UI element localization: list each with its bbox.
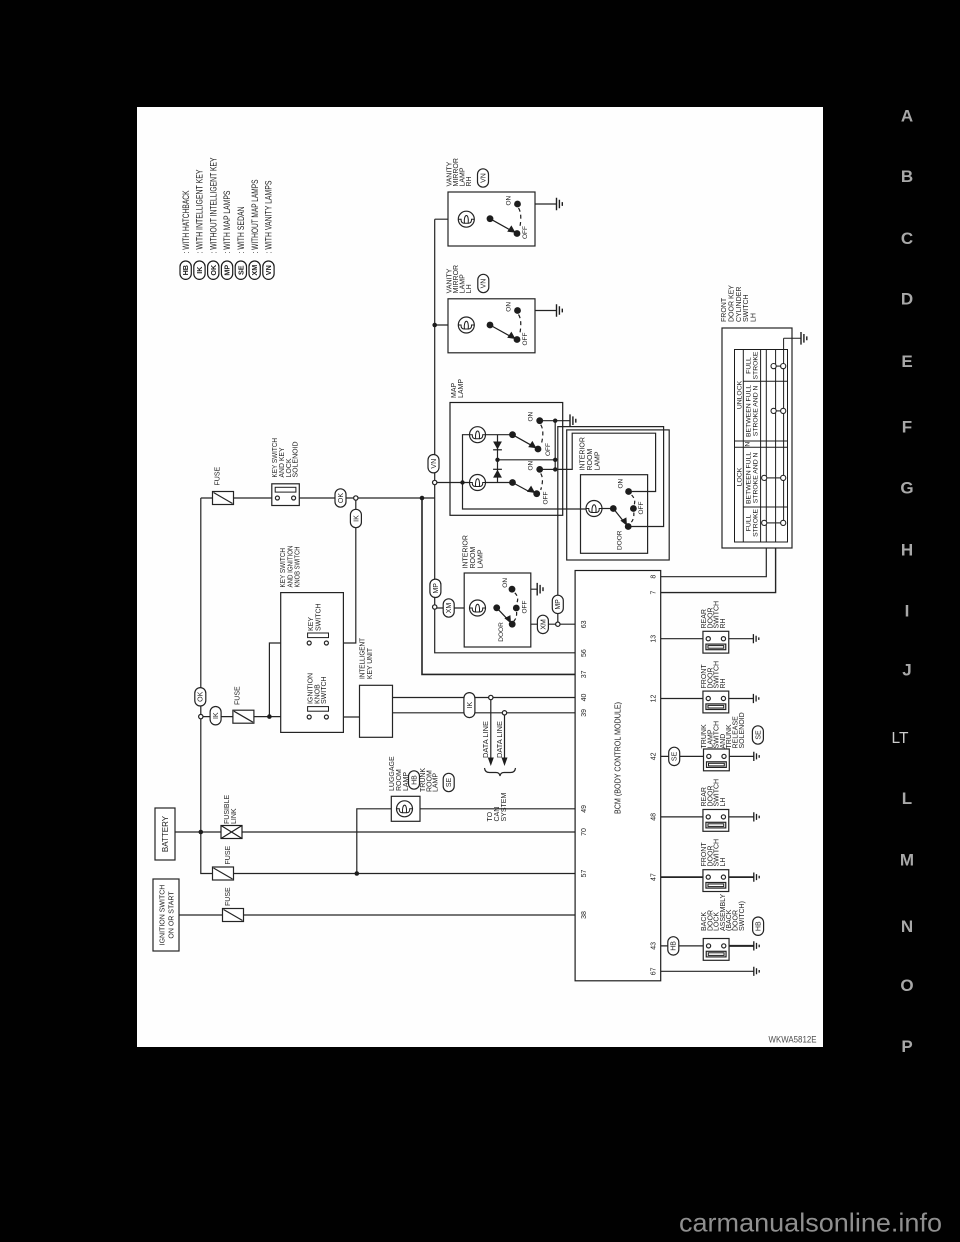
svg-text:KEY SWITCH: KEY SWITCH xyxy=(280,548,287,588)
svg-text:SYSTEM: SYSTEM xyxy=(501,793,508,822)
svg-text:C: C xyxy=(901,229,913,248)
svg-text:DOOR: DOOR xyxy=(617,530,624,550)
svg-text:STROKE: STROKE xyxy=(752,351,759,379)
svg-text:O: O xyxy=(900,976,913,995)
svg-text:XM: XM xyxy=(540,619,547,630)
svg-text:DATA LINE: DATA LINE xyxy=(497,721,504,758)
svg-text:carmanualsonline.info: carmanualsonline.info xyxy=(679,1208,942,1238)
svg-text:LINK: LINK xyxy=(231,808,238,824)
svg-text:SE: SE xyxy=(446,778,453,788)
svg-text:: WITH HATCHBACK: : WITH HATCHBACK xyxy=(181,190,192,253)
svg-text:40: 40 xyxy=(581,694,588,702)
svg-text:OFF: OFF xyxy=(522,332,529,345)
svg-text:SOLENOID: SOLENOID xyxy=(739,712,746,748)
svg-text:LUGGAGE: LUGGAGE xyxy=(389,756,396,791)
svg-text:FUSE: FUSE xyxy=(235,686,242,705)
svg-text:: WITH SEDAN: : WITH SEDAN xyxy=(236,206,247,253)
svg-text:ON OR START: ON OR START xyxy=(168,891,175,939)
svg-text:FUSE: FUSE xyxy=(225,846,232,865)
svg-text:: WITH INTELLIGENT KEY: : WITH INTELLIGENT KEY xyxy=(195,169,206,253)
svg-text:OFF: OFF xyxy=(545,443,552,456)
svg-text:48: 48 xyxy=(651,813,658,821)
svg-text:ROOM: ROOM xyxy=(396,769,403,791)
svg-text:: WITHOUT INTELLIGENT KEY: : WITHOUT INTELLIGENT KEY xyxy=(208,157,219,253)
svg-text:38: 38 xyxy=(581,911,588,919)
svg-text:FUSE: FUSE xyxy=(225,887,232,906)
svg-text:RH: RH xyxy=(720,678,727,688)
svg-text:39: 39 xyxy=(581,709,588,717)
svg-text:SWITCH: SWITCH xyxy=(743,294,750,322)
svg-text:XM: XM xyxy=(446,603,453,614)
svg-text:SWITCH: SWITCH xyxy=(316,603,323,631)
svg-text:KEY: KEY xyxy=(308,617,315,631)
svg-text:VN: VN xyxy=(480,173,487,183)
svg-text:LOCK: LOCK xyxy=(737,467,744,486)
svg-text:KEY UNIT: KEY UNIT xyxy=(367,647,374,679)
svg-text:42: 42 xyxy=(651,752,658,760)
svg-text:CAN: CAN xyxy=(494,807,501,822)
svg-text:63: 63 xyxy=(581,620,588,628)
svg-text:SE: SE xyxy=(672,751,679,761)
svg-text:: WITH MAP LAMPS: : WITH MAP LAMPS xyxy=(222,190,233,253)
svg-text:56: 56 xyxy=(581,649,588,657)
svg-text:DATA LINE: DATA LINE xyxy=(483,721,490,758)
svg-text:37: 37 xyxy=(581,670,588,678)
svg-text:UNLOCK: UNLOCK xyxy=(737,380,744,409)
svg-text:SWITCH: SWITCH xyxy=(321,676,328,704)
svg-text:OFF: OFF xyxy=(638,501,645,514)
svg-text:SE: SE xyxy=(236,265,245,275)
svg-text:G: G xyxy=(900,479,913,498)
svg-text:IK: IK xyxy=(195,266,204,274)
svg-text:ROOM: ROOM xyxy=(587,449,594,471)
svg-text:STROKE AND N: STROKE AND N xyxy=(752,453,759,504)
svg-text:D: D xyxy=(901,290,913,309)
svg-text:ON: ON xyxy=(618,478,625,488)
svg-text:TO: TO xyxy=(487,811,494,821)
svg-text:BCM (BODY CONTROL MODULE): BCM (BODY CONTROL MODULE) xyxy=(613,702,622,814)
svg-text:N: N xyxy=(901,917,913,936)
svg-text:KNOB SWITCH: KNOB SWITCH xyxy=(295,547,302,588)
svg-text:J: J xyxy=(902,661,911,680)
svg-text:57: 57 xyxy=(581,870,588,878)
svg-text:43: 43 xyxy=(651,942,658,950)
svg-text:DOOR: DOOR xyxy=(498,622,505,642)
svg-text:A: A xyxy=(901,107,913,126)
svg-text:LH: LH xyxy=(720,798,727,807)
svg-text:P: P xyxy=(901,1037,912,1056)
svg-text:BETWEEN FULL: BETWEEN FULL xyxy=(745,385,752,437)
svg-text:MP: MP xyxy=(433,583,440,594)
svg-text:OFF: OFF xyxy=(522,226,529,239)
svg-text:47: 47 xyxy=(651,873,658,881)
svg-text:70: 70 xyxy=(581,828,588,836)
svg-text:XM: XM xyxy=(250,265,259,276)
svg-text:LAMP: LAMP xyxy=(403,772,410,791)
svg-text:STROKE AND N: STROKE AND N xyxy=(752,386,759,437)
svg-text:CYLINDER: CYLINDER xyxy=(736,287,743,322)
svg-text:LH: LH xyxy=(750,313,757,322)
svg-text:BATTERY: BATTERY xyxy=(161,815,170,852)
svg-text:LH: LH xyxy=(466,284,473,293)
svg-text:OFF: OFF xyxy=(543,491,550,504)
svg-text:FULL: FULL xyxy=(745,514,752,531)
svg-text:LT: LT xyxy=(892,730,909,747)
svg-text:IK: IK xyxy=(467,701,474,708)
svg-text:ON: ON xyxy=(528,411,535,421)
svg-text:N: N xyxy=(745,442,752,447)
svg-text:13: 13 xyxy=(651,635,658,643)
svg-text:7: 7 xyxy=(651,591,658,595)
svg-text:OK: OK xyxy=(209,264,218,276)
svg-text:12: 12 xyxy=(651,695,658,703)
svg-text:HB: HB xyxy=(671,941,678,951)
svg-text:LH: LH xyxy=(720,858,727,867)
svg-text:WKWA5812E: WKWA5812E xyxy=(769,1035,817,1045)
svg-text:RH: RH xyxy=(720,618,727,628)
svg-text:: WITHOUT MAP LAMPS: : WITHOUT MAP LAMPS xyxy=(250,180,261,254)
svg-text:ON: ON xyxy=(502,578,509,588)
svg-text:BETWEEN FULL: BETWEEN FULL xyxy=(745,452,752,504)
svg-text:OK: OK xyxy=(338,493,345,503)
svg-text:INTELLIGENT: INTELLIGENT xyxy=(360,637,367,679)
svg-text:INTERIOR: INTERIOR xyxy=(580,437,587,470)
svg-text:IK: IK xyxy=(353,515,360,522)
svg-text:FRONT: FRONT xyxy=(721,297,728,322)
svg-text:B: B xyxy=(901,167,913,186)
svg-text:E: E xyxy=(901,352,912,371)
svg-text:L: L xyxy=(902,789,912,808)
svg-text:OK: OK xyxy=(198,691,205,701)
svg-text:FUSIBLE: FUSIBLE xyxy=(224,794,231,824)
svg-text:MP: MP xyxy=(555,599,562,610)
svg-text:IK: IK xyxy=(213,712,220,719)
svg-text:ON: ON xyxy=(528,460,535,470)
svg-text:LAMP: LAMP xyxy=(595,451,602,470)
svg-text:RH: RH xyxy=(466,176,473,186)
svg-text:VN: VN xyxy=(481,279,488,289)
svg-text:FUSE: FUSE xyxy=(215,467,222,486)
svg-text:VN: VN xyxy=(431,459,438,469)
svg-text:ON: ON xyxy=(506,302,513,312)
svg-text:H: H xyxy=(901,541,913,560)
svg-text:FULL: FULL xyxy=(745,357,752,374)
svg-text:I: I xyxy=(905,601,910,620)
svg-text:LAMP: LAMP xyxy=(433,773,440,792)
svg-text:MP: MP xyxy=(223,265,232,276)
svg-text:STROKE: STROKE xyxy=(752,508,759,536)
svg-text:VN: VN xyxy=(264,265,273,275)
svg-text:MAP: MAP xyxy=(451,383,458,399)
svg-text:ROOM: ROOM xyxy=(470,547,477,569)
svg-text:SOLENOID: SOLENOID xyxy=(293,442,300,478)
svg-text:: WITH VANITY LAMPS: : WITH VANITY LAMPS xyxy=(264,181,275,254)
svg-text:IGNITION SWITCH: IGNITION SWITCH xyxy=(159,885,166,946)
svg-text:HB: HB xyxy=(755,921,762,931)
svg-text:LAMP: LAMP xyxy=(458,379,465,398)
svg-text:67: 67 xyxy=(651,967,658,975)
svg-text:OFF: OFF xyxy=(522,600,529,613)
svg-text:HB: HB xyxy=(181,265,190,275)
svg-text:49: 49 xyxy=(581,805,588,813)
svg-text:F: F xyxy=(902,418,912,437)
svg-text:ON: ON xyxy=(506,195,513,205)
svg-text:AND IGNITION: AND IGNITION xyxy=(287,546,294,588)
svg-text:LAMP: LAMP xyxy=(478,549,485,568)
svg-text:SE: SE xyxy=(755,730,762,740)
svg-text:DOOR KEY: DOOR KEY xyxy=(729,285,736,322)
svg-text:INTERIOR: INTERIOR xyxy=(463,535,470,568)
svg-text:HB: HB xyxy=(411,775,418,785)
svg-text:SWITCH): SWITCH) xyxy=(739,901,746,931)
svg-text:M: M xyxy=(900,850,914,869)
svg-text:8: 8 xyxy=(651,575,658,579)
